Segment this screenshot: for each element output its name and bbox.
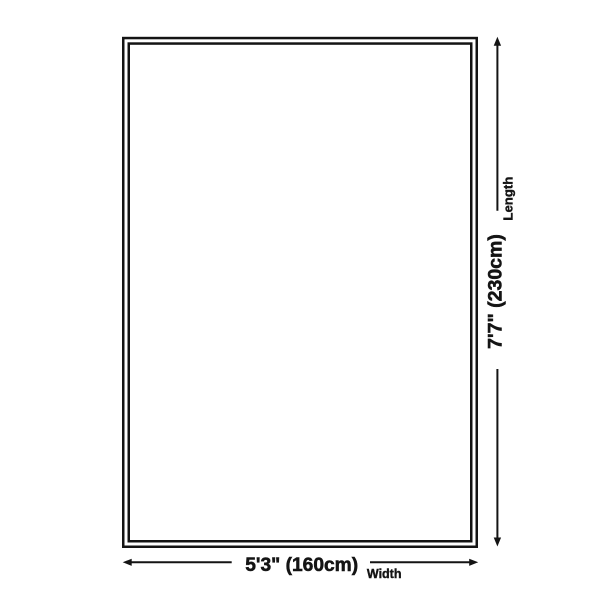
svg-text:7'7" (230cm): 7'7" (230cm) [485, 234, 507, 349]
svg-text:5'3" (160cm): 5'3" (160cm) [245, 555, 358, 576]
svg-text:Width: Width [367, 567, 402, 581]
svg-text:Length: Length [500, 177, 515, 221]
